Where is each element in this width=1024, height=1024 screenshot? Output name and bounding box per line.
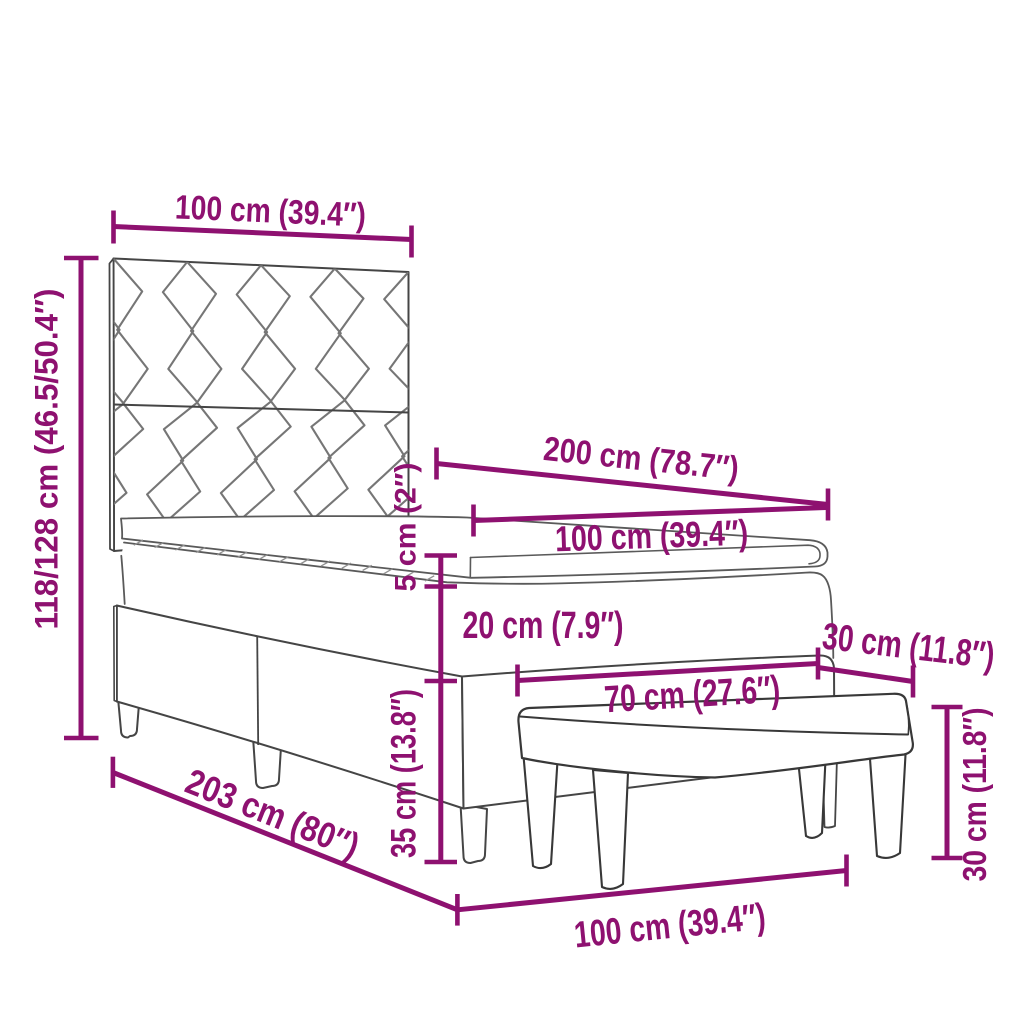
svg-text:5 cm (2″): 5 cm (2″) <box>390 463 423 592</box>
svg-text:118/128 cm (46.5/50.4″): 118/128 cm (46.5/50.4″) <box>29 289 65 630</box>
svg-text:30 cm (11.8″): 30 cm (11.8″) <box>957 708 994 882</box>
svg-text:20 cm (7.9″): 20 cm (7.9″) <box>463 605 624 647</box>
svg-text:100 cm (39.4″): 100 cm (39.4″) <box>554 512 748 560</box>
svg-text:35 cm (13.8″): 35 cm (13.8″) <box>385 689 424 858</box>
